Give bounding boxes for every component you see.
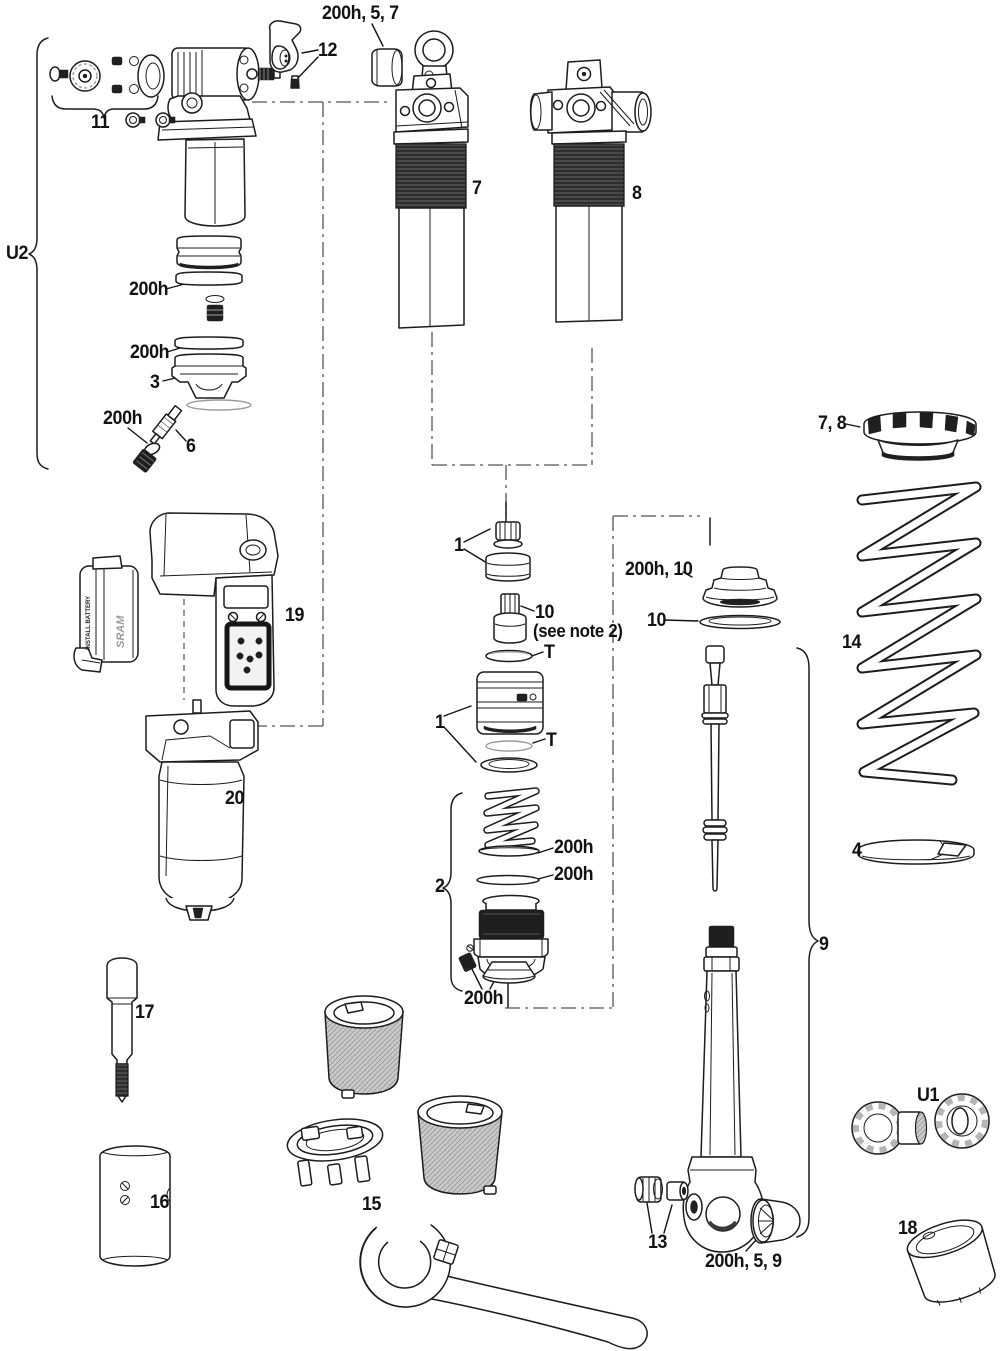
mount-hardware-11 <box>50 55 175 127</box>
label-6: 6 <box>186 437 196 456</box>
label-see-note-2: (see note 2) <box>533 622 623 640</box>
label-7-8: 7, 8 <box>818 414 846 433</box>
label-200h-a: 200h <box>129 280 168 299</box>
bushing-200h-5-9 <box>751 1199 800 1243</box>
bushing-200h-5-7 <box>372 49 402 86</box>
label-3: 3 <box>150 373 160 392</box>
bumper-200h-10 <box>700 567 780 629</box>
battery: INSTALL BATTERY SRAM <box>74 556 138 672</box>
needle-shaft <box>702 646 728 891</box>
battery-text: INSTALL BATTERY <box>86 596 92 650</box>
label-2: 2 <box>435 877 445 896</box>
label-200h-e: 200h <box>554 865 593 884</box>
label-13: 13 <box>648 1233 667 1252</box>
label-t-bottom: T <box>546 731 557 750</box>
main-damper-assembly <box>158 48 280 226</box>
tool-17 <box>107 958 137 1102</box>
shock-body-7 <box>394 31 468 328</box>
label-200h-d: 200h <box>554 838 593 857</box>
label-15: 15 <box>362 1195 381 1214</box>
motor-unit-20 <box>146 700 258 920</box>
label-14: 14 <box>842 633 861 652</box>
threaded-collar-a <box>325 996 403 1098</box>
retainer-collar-b <box>285 1114 389 1192</box>
battery-brand: SRAM <box>115 615 127 648</box>
wrench-15 <box>355 1196 647 1349</box>
damper-body-9 <box>683 926 763 1252</box>
mount-hardware-13 <box>635 1177 688 1202</box>
label-1-bottom: 1 <box>435 713 445 732</box>
threaded-collar-c <box>418 1096 502 1194</box>
label-12: 12 <box>318 41 337 60</box>
diagram-artwork: INSTALL BATTERY SRAM <box>0 0 1000 1351</box>
label-u2: U2 <box>6 244 28 263</box>
damper-internals-2 <box>458 791 548 983</box>
label-20: 20 <box>225 789 244 808</box>
label-18: 18 <box>898 1219 917 1238</box>
label-19: 19 <box>285 606 304 625</box>
label-200h-5-7: 200h, 5, 7 <box>322 4 399 23</box>
label-200h-10: 200h, 10 <box>625 560 693 579</box>
label-200h-b: 200h <box>130 343 169 362</box>
label-11: 11 <box>91 113 109 132</box>
label-200h-5-9: 200h, 5, 9 <box>705 1252 782 1271</box>
label-4: 4 <box>852 841 862 860</box>
label-17: 17 <box>135 1003 154 1022</box>
coil-spring-14 <box>862 487 976 780</box>
label-8: 8 <box>632 184 642 203</box>
label-10-right: 10 <box>647 611 666 630</box>
label-10-top: 10 <box>535 603 554 622</box>
socket-18 <box>903 1213 1000 1314</box>
spring-seat-4 <box>858 840 974 864</box>
preload-ring-7-8 <box>864 412 976 461</box>
label-200h-f: 200h <box>464 989 503 1008</box>
label-t-top: T <box>544 643 555 662</box>
label-200h-c: 200h <box>103 409 142 428</box>
label-1-top: 1 <box>454 536 464 555</box>
piston-stack-1 <box>477 522 543 772</box>
label-9: 9 <box>819 935 829 954</box>
control-module-19 <box>150 513 278 706</box>
label-u1: U1 <box>917 1086 939 1105</box>
diagram-canvas: INSTALL BATTERY SRAM <box>0 0 1000 1351</box>
label-7: 7 <box>472 179 482 198</box>
label-16: 16 <box>150 1193 169 1212</box>
